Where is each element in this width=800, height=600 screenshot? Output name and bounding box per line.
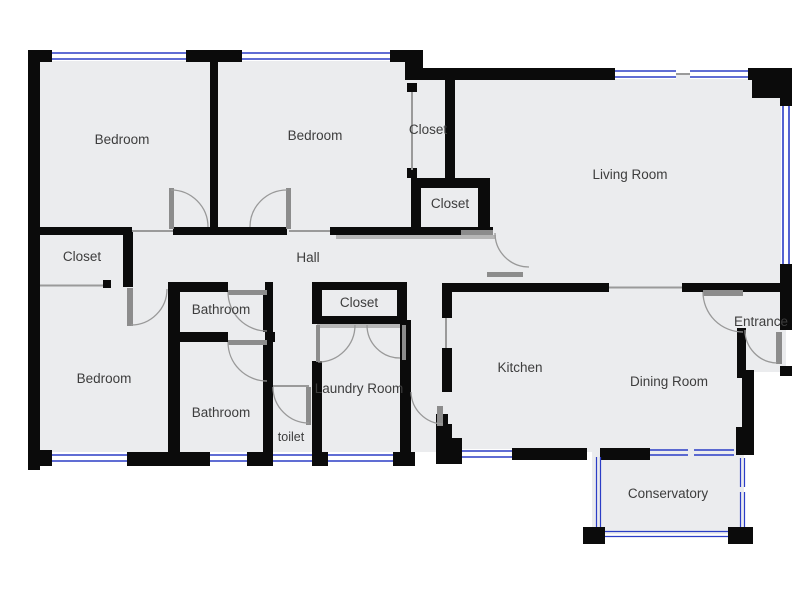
room-label-entrance: Entrance [734,314,788,329]
room-label-closet-left: Closet [63,249,102,264]
room-label-hall: Hall [296,250,319,265]
room-label-living: Living Room [592,167,667,182]
room-label-conservatory: Conservatory [628,486,709,501]
room-label-bedroom1: Bedroom [95,132,150,147]
room-label-bathroom2: Bathroom [192,405,251,420]
floor-plan-svg: Bedroom Bedroom Closet Living Room Close… [0,0,800,600]
room-label-bedroom3: Bedroom [77,371,132,386]
room-label-dining: Dining Room [630,374,708,389]
room-label-kitchen: Kitchen [497,360,542,375]
room-label-closet-mid: Closet [340,295,379,310]
room-label-bedroom2: Bedroom [288,128,343,143]
conservatory-post [583,527,605,544]
conservatory-post [728,527,753,544]
room-label-closet-hall: Closet [431,196,470,211]
room-label-bathroom1: Bathroom [192,302,251,317]
room-label-laundry: Laundry Room [315,381,404,396]
left-exterior-wall [28,50,40,470]
front-door-leaf [776,332,782,364]
room-label-toilet: toilet [278,430,305,444]
floor-plan-page: Bedroom Bedroom Closet Living Room Close… [0,0,800,600]
room-label-closet-top: Closet [409,122,448,137]
